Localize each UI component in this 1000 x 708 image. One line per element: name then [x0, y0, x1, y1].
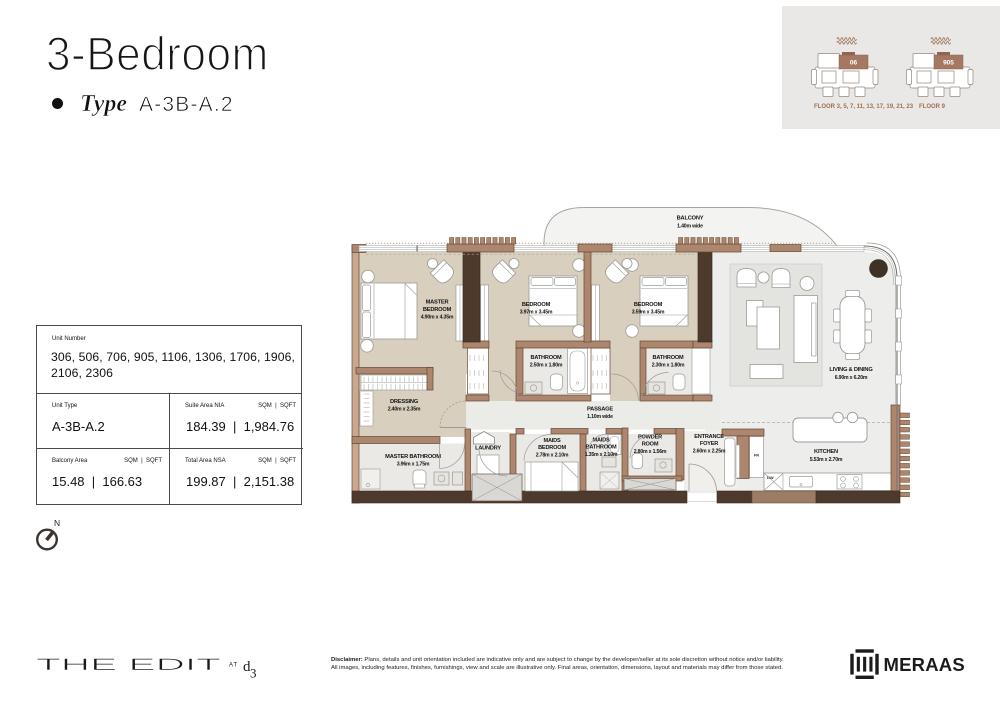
svg-text:FLOOR 9: FLOOR 9 — [919, 104, 946, 110]
svg-text:N: N — [54, 518, 60, 528]
svg-text:MERAAS: MERAAS — [884, 654, 965, 675]
svg-text:THE EDIT: THE EDIT — [36, 655, 221, 674]
svg-text:FLOOR 3, 5, 7, 11, 13, 17, 19,: FLOOR 3, 5, 7, 11, 13, 17, 19, 21, 23 — [814, 104, 914, 110]
svg-text:06: 06 — [850, 60, 858, 67]
svg-text:905: 905 — [943, 60, 954, 67]
svg-text:3: 3 — [250, 666, 257, 681]
svg-text:AT: AT — [229, 663, 238, 669]
